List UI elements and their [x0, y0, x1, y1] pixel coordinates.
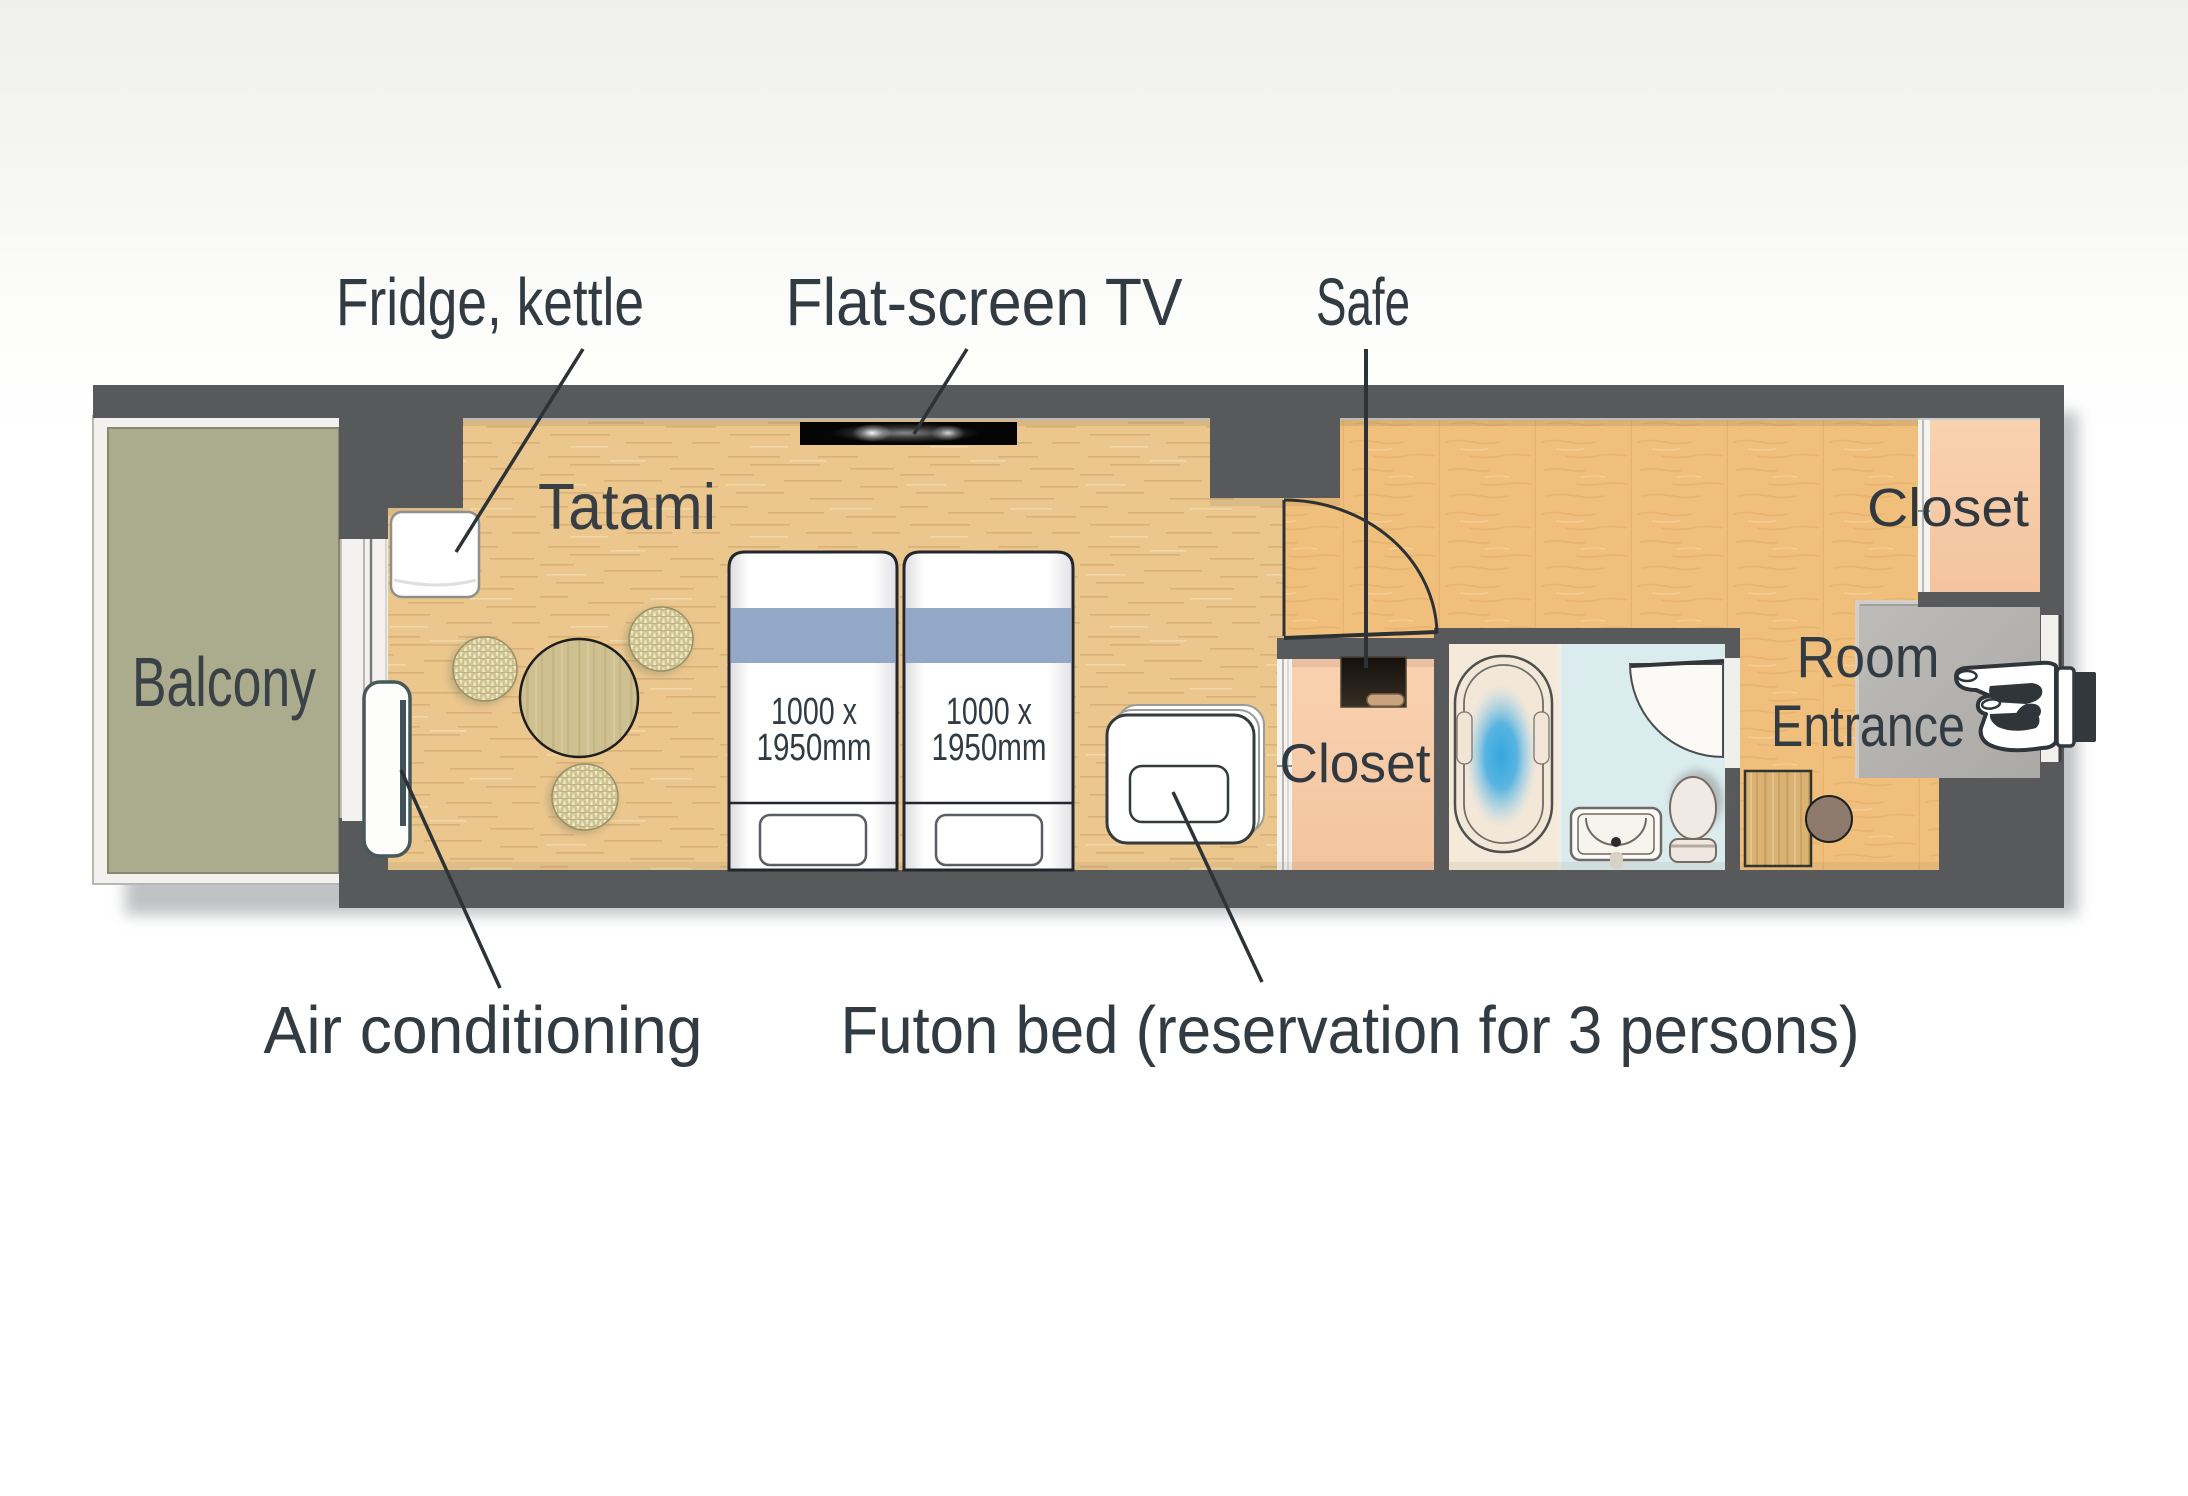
- svg-text:Closet: Closet: [1867, 478, 2029, 538]
- svg-text:Balcony: Balcony: [132, 643, 316, 721]
- svg-text:1950mm: 1950mm: [932, 727, 1047, 769]
- svg-text:Air conditioning: Air conditioning: [264, 993, 703, 1068]
- svg-text:Entrance: Entrance: [1771, 694, 1965, 759]
- svg-text:Flat-screen TV: Flat-screen TV: [786, 265, 1183, 340]
- svg-text:Safe: Safe: [1316, 265, 1410, 340]
- svg-text:Futon bed (reservation for 3 p: Futon bed (reservation for 3 persons): [841, 993, 1860, 1068]
- svg-text:Room: Room: [1797, 625, 1940, 690]
- svg-text:Fridge, kettle: Fridge, kettle: [336, 265, 644, 340]
- svg-text:1950mm: 1950mm: [757, 727, 872, 769]
- svg-text:Tatami: Tatami: [538, 470, 716, 543]
- svg-text:Closet: Closet: [1280, 732, 1431, 794]
